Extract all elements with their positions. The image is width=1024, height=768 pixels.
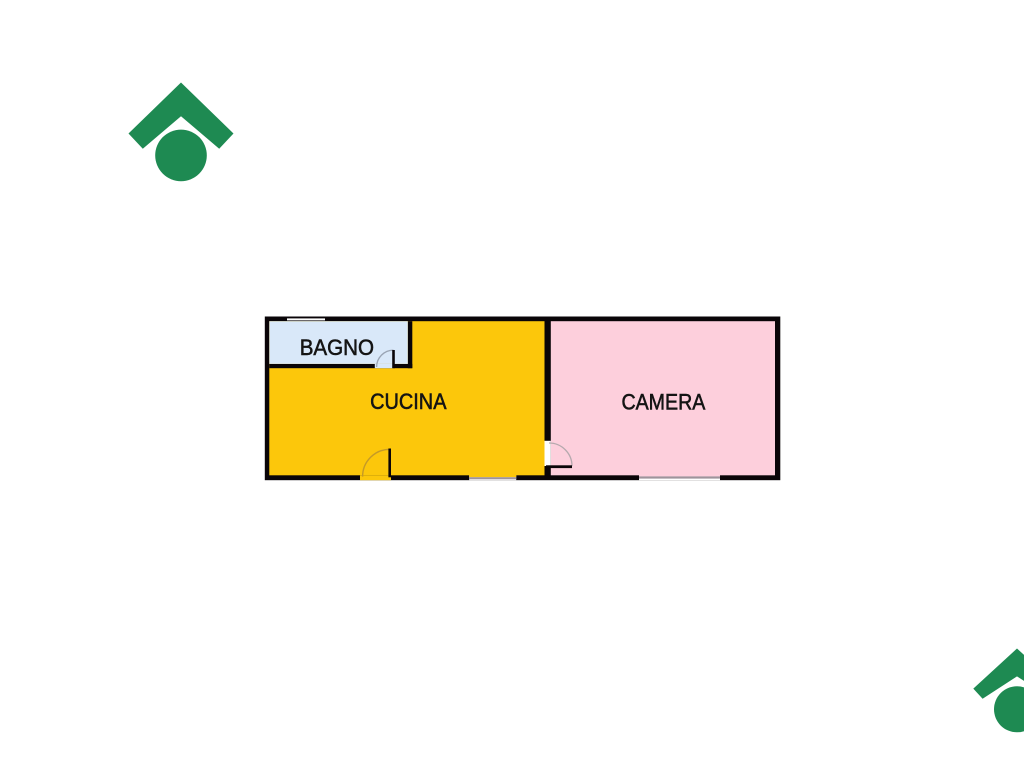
svg-text:CUCINA: CUCINA	[370, 389, 447, 414]
svg-text:CAMERA: CAMERA	[621, 389, 705, 414]
svg-text:BAGNO: BAGNO	[300, 335, 374, 360]
